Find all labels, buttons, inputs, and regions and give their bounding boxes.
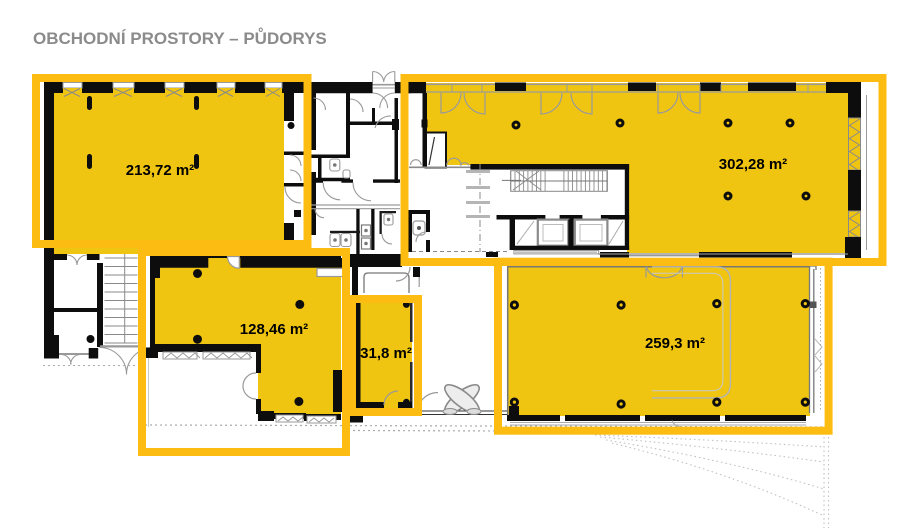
svg-text:302,28 m²: 302,28 m² — [719, 156, 787, 173]
svg-text:259,3 m²: 259,3 m² — [645, 335, 705, 352]
svg-text:31,8 m²: 31,8 m² — [360, 345, 412, 362]
svg-text:213,72 m²: 213,72 m² — [126, 162, 194, 179]
svg-text:OBCHODNÍ PROSTORY – PŮDORYS: OBCHODNÍ PROSTORY – PŮDORYS — [33, 28, 327, 48]
svg-text:128,46 m²: 128,46 m² — [240, 321, 308, 338]
